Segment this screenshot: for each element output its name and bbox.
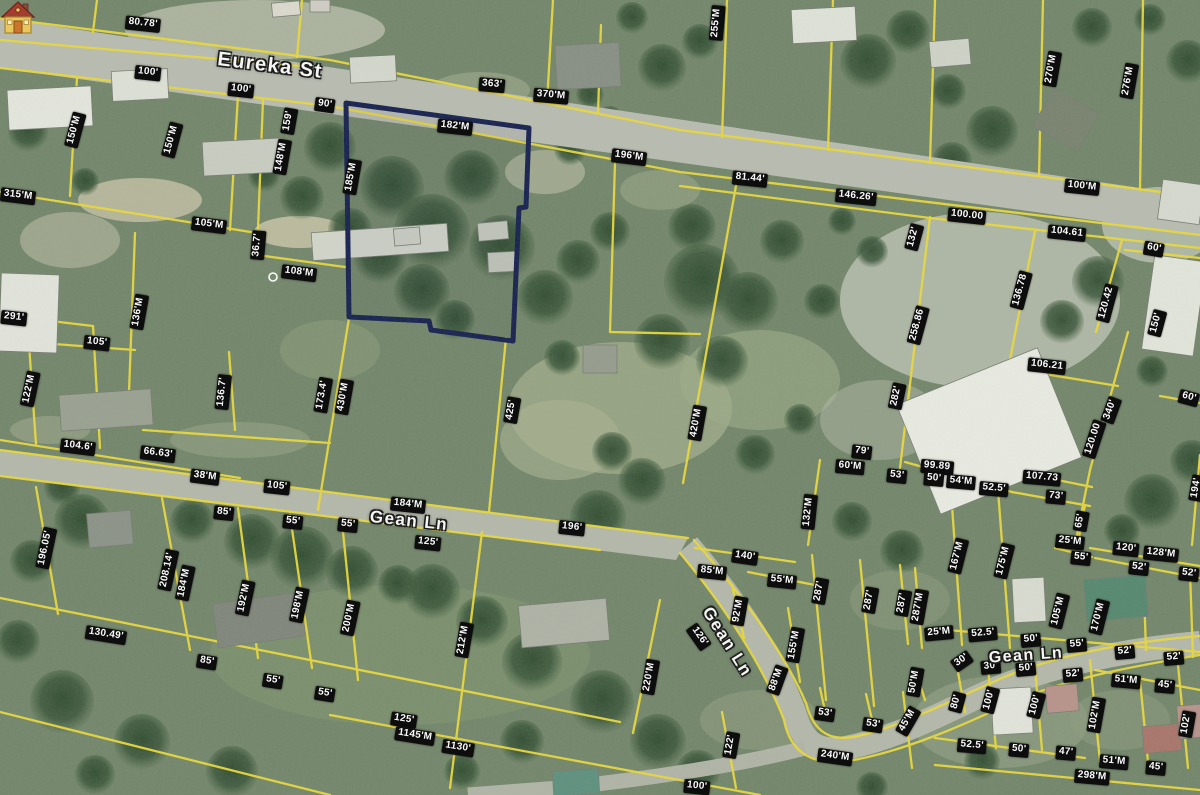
dimension-label: 298'M	[1074, 769, 1110, 785]
dimension-label: 55'	[282, 514, 304, 530]
dimension-label: 122'	[722, 731, 740, 759]
dimension-label: 90'	[314, 97, 336, 113]
dimension-label: 192'M	[235, 580, 255, 617]
dimension-label: 52.5'	[979, 481, 1009, 497]
dimension-label: 106.21	[1027, 357, 1067, 374]
dimension-label: 52'	[1062, 667, 1084, 682]
dimension-label: 100'	[683, 779, 711, 795]
dimension-label: 212'M	[454, 622, 473, 659]
dimension-label: 175'M	[993, 542, 1015, 579]
dimension-label: 52'	[1114, 644, 1136, 659]
dimension-label: 200'M	[340, 600, 360, 637]
dimension-label: 60'	[1143, 241, 1165, 258]
labels-layer: 80.78'100'100'90'363'370'M182'M196'M81.4…	[0, 0, 1200, 795]
dimension-label: 430'M	[334, 379, 353, 416]
dimension-label: 146.26'	[835, 188, 877, 206]
dimension-label: 136.7'	[214, 374, 231, 410]
dimension-label: 120.00	[1082, 419, 1107, 460]
dimension-label: 105'M	[1048, 592, 1070, 629]
dimension-label: 315'M	[0, 187, 36, 205]
dimension-label: 196.05'	[35, 527, 57, 570]
dimension-label: 120.42	[1096, 283, 1119, 324]
dimension-label: 66.63'	[140, 445, 177, 463]
dimension-label: 53'	[886, 468, 908, 484]
dimension-label: 136.78	[1010, 270, 1033, 311]
aerial-parcel-map: 80.78'100'100'90'363'370'M182'M196'M81.4…	[0, 0, 1200, 795]
dimension-label: 100.00	[947, 207, 987, 224]
dimension-label: 79'	[851, 444, 873, 460]
dimension-label: 88'M	[766, 664, 789, 696]
dimension-label: 208.14'	[157, 549, 179, 592]
dimension-label: 104.61	[1047, 224, 1087, 241]
dimension-label: 167'M	[947, 537, 969, 574]
dimension-label: 130.49'	[85, 625, 128, 645]
dimension-label: 194'	[1188, 474, 1200, 502]
dimension-label: 370'M	[533, 88, 569, 104]
dimension-label: 45'	[1154, 678, 1176, 693]
dimension-label: 148'M	[272, 139, 291, 176]
dimension-label: 150'M	[64, 111, 86, 148]
dimension-label: 125'	[390, 711, 418, 728]
dimension-label: 65'	[1073, 510, 1090, 532]
dimension-label: 100'	[980, 686, 1000, 715]
dimension-label: 54'M	[946, 474, 976, 490]
dimension-label: 240'M	[817, 748, 853, 766]
dimension-label: 425'	[503, 396, 521, 424]
dimension-label: 198'M	[289, 587, 309, 624]
dimension-label: 45'M	[895, 705, 921, 737]
dimension-label: 105'	[83, 335, 111, 351]
dimension-label: 102'M	[1086, 697, 1105, 734]
dimension-label: 52.5'	[968, 626, 998, 642]
street-label-gean-ln: Gean Ln	[369, 507, 449, 535]
dimension-label: 287'	[861, 586, 879, 614]
dimension-label: 53'	[814, 706, 836, 722]
dimension-label: 81.44'	[732, 170, 768, 187]
dimension-label: 100'M	[1064, 178, 1100, 195]
dimension-label: 159'	[280, 107, 298, 135]
dimension-label: 80.78'	[125, 15, 161, 32]
street-label-gean-ln: Gean Ln	[988, 644, 1064, 667]
dimension-label: 50'M	[906, 667, 924, 698]
dimension-label: 50'	[923, 471, 945, 486]
dimension-label: 73'	[1045, 489, 1067, 504]
street-label-eureka-st: Eureka St	[216, 48, 324, 84]
dimension-label: 52'	[1128, 560, 1150, 576]
dimension-label: 52.5'	[957, 738, 987, 754]
dimension-label: 107.73	[1022, 470, 1061, 487]
dimension-label: 1145'M	[394, 726, 436, 746]
dimension-label: 25'M	[924, 625, 954, 641]
dimension-label: 52'	[1163, 650, 1185, 665]
dimension-label: 420'M	[687, 405, 706, 442]
dimension-label: 55'	[1066, 637, 1088, 652]
dimension-label: 196'M	[611, 148, 647, 166]
dimension-label: 150'	[1147, 309, 1167, 338]
dimension-label: 102'	[1178, 710, 1196, 738]
dimension-label: 287'M	[909, 589, 928, 626]
dimension-label: 140'	[731, 548, 759, 565]
dimension-label: 30'	[950, 650, 974, 673]
dimension-label: 120'	[1112, 541, 1140, 557]
dimension-label: 36.7'	[250, 230, 266, 260]
dimension-label: 53'	[862, 717, 884, 733]
dimension-label: 45'	[1145, 760, 1167, 775]
dimension-label: 276'M	[1119, 63, 1138, 100]
dimension-label: 282'	[888, 382, 907, 410]
dimension-label: 291'	[0, 310, 28, 326]
dimension-label: 125'	[414, 535, 442, 551]
dimension-label: 170'M	[1088, 598, 1110, 635]
dimension-label: 173.4'	[313, 376, 332, 413]
dimension-label: 92'M	[730, 596, 748, 627]
dimension-label: 60'	[1177, 389, 1200, 407]
dimension-label: 184'M	[175, 565, 195, 602]
dimension-label: 55'M	[767, 573, 797, 589]
dimension-label: 100'	[1026, 691, 1046, 720]
dimension-label: 55'	[262, 673, 284, 690]
dimension-label: 52'	[1178, 566, 1200, 582]
dimension-label: 105'	[263, 479, 291, 495]
dimension-label: 80'	[948, 690, 966, 713]
dimension-label: 51'M	[1099, 754, 1129, 770]
dimension-label: 85'M	[697, 564, 727, 580]
dimension-label: 182'M	[437, 118, 473, 135]
dimension-label: 104.6'	[60, 438, 97, 456]
dimension-label: 85'	[213, 505, 235, 521]
dimension-label: 132'M	[800, 494, 817, 530]
dimension-label: 363'	[478, 77, 505, 93]
dimension-label: 60'M	[835, 459, 865, 475]
dimension-label: 100'	[134, 65, 162, 81]
dimension-label: 100'	[227, 82, 255, 98]
dimension-label: 196'	[558, 520, 586, 536]
dimension-label: 220'M	[640, 659, 659, 696]
dimension-label: 1130'	[441, 739, 474, 757]
dimension-label: 105'M	[191, 216, 227, 234]
dimension-label: 122'M	[20, 371, 40, 408]
dimension-label: 258.86	[907, 305, 930, 346]
dimension-label: 136'M	[129, 294, 148, 331]
dimension-label: 185'M	[342, 159, 361, 196]
dimension-label: 128'M	[1143, 545, 1179, 562]
dimension-label: 108'M	[281, 264, 317, 282]
dimension-label: 47'	[1055, 745, 1077, 760]
dimension-label: 255'M	[709, 5, 725, 41]
dimension-label: 270'M	[1042, 51, 1061, 88]
dimension-label: 340'	[1100, 395, 1122, 424]
dimension-label: 55'	[314, 686, 336, 703]
dimension-label: 85'	[196, 654, 218, 671]
dimension-label: 25'M	[1055, 534, 1085, 550]
dimension-label: 55'	[1070, 550, 1092, 566]
dimension-label: 51'M	[1111, 673, 1141, 689]
dimension-label: 287'	[894, 589, 912, 617]
dimension-label: 38'M	[190, 469, 220, 486]
dimension-label: 132'	[904, 223, 924, 252]
dimension-label: 55'	[337, 517, 359, 533]
dimension-label: 287'	[811, 577, 829, 605]
dimension-label: 150'M	[161, 121, 183, 158]
dimension-label: 155'M	[785, 627, 804, 664]
dimension-label: 50'	[1008, 742, 1030, 757]
